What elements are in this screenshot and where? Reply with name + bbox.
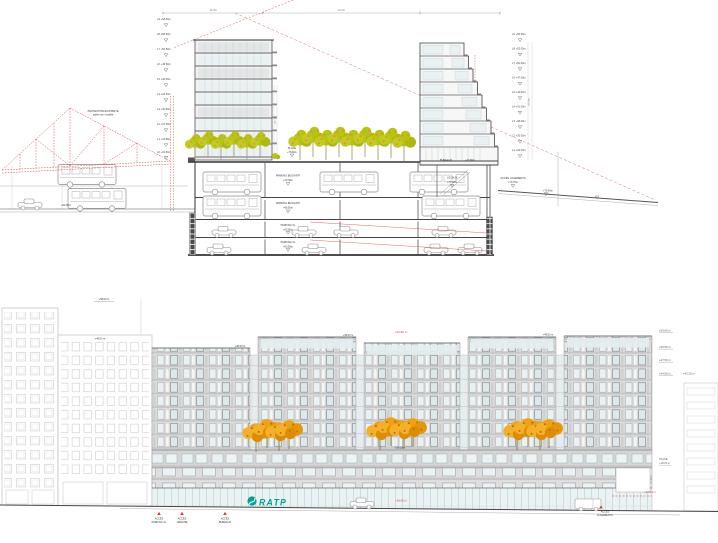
protection-truss: [2, 108, 170, 173]
depot-level-tag: +62.00m: [61, 204, 71, 207]
block-a: [152, 348, 250, 450]
level-label: L2 +35.00m: [512, 134, 526, 138]
section-left-levels: L9 +58.50m L8 +55.50m L7 +52.50m L6 +49.…: [157, 17, 171, 159]
context-building-right: [684, 383, 718, 511]
level-label: L7 +52.50m: [157, 47, 171, 51]
parapet-tag: +46.50 m: [235, 345, 246, 348]
dim-label: 21.10: [273, 116, 277, 124]
bureaux-level: +73.80m: [465, 159, 475, 162]
context-building-2: +49.50 m: [58, 335, 152, 506]
level-label: L8 +55.50m: [157, 32, 171, 36]
parking-label: PARKING VL: [281, 241, 296, 244]
entrance-recess: [616, 468, 650, 492]
mid-dim: 21.10: [273, 85, 277, 160]
svg-text:PLACE: PLACE: [288, 147, 297, 150]
level-label: L7 +50.00m: [512, 61, 526, 65]
dim-label: 11.80: [209, 8, 217, 12]
street-elevation: +58.00 m +49.50 m: [0, 298, 718, 543]
bureaux-label: BUREAUX: [440, 159, 452, 162]
truss-label-line2: atelier non modifié: [93, 114, 114, 117]
level-label: L6 +49.50m: [157, 62, 171, 66]
locaux-level: +70.30m: [447, 181, 457, 184]
car-icon: [207, 244, 231, 255]
car-icon: [424, 244, 448, 255]
place-label: PLACE: [659, 457, 668, 461]
car-icon: [432, 227, 456, 238]
red-street-level: +16.00 m: [644, 490, 656, 494]
podium-band-1: [152, 450, 652, 468]
car-icon: [18, 199, 42, 210]
top-dimension-line: 11.80 14.20: [162, 8, 501, 17]
access-label: BUREAUX: [219, 521, 231, 524]
acces-logements-label: ACCÈS LOGEMENTS: [500, 177, 525, 180]
acces-logements-level: +73.70m: [508, 181, 518, 184]
level-label: L3 +38.00m: [512, 119, 526, 123]
level-label: +47.50 m: [659, 358, 671, 362]
level-label: L9 +56.00m: [512, 32, 526, 36]
place-label: PLACE +76.30m: [287, 147, 297, 157]
access-label: LOGEMENTS: [597, 514, 613, 517]
dim-label: 27.85: [527, 98, 531, 106]
parking-level: +63.50m: [283, 229, 293, 232]
svg-text:+76.30m: +76.30m: [287, 151, 297, 154]
right-level-tag: +73.40m: [543, 190, 553, 193]
level-label: L5 +44.00m: [512, 90, 526, 94]
parapet-tag: +49.50 m: [95, 338, 106, 341]
car-icon: [212, 227, 236, 238]
level-label: +42.20 m: [683, 372, 695, 376]
terrace-level-tag: +28.00 m: [395, 446, 406, 449]
red-level-label: +52.80 m: [395, 330, 408, 334]
parking-level: +66.50m: [283, 207, 293, 210]
red-street-level: +16.00 m: [395, 499, 407, 503]
bus-icon: [320, 172, 378, 195]
existing-depot: +62.00m: [0, 165, 195, 213]
section-right-ground: ACCÈS LOGEMENTS +73.70m +73.40m: [498, 152, 658, 206]
level-label: +53.00 m: [659, 329, 671, 333]
place-level: +19.70 m: [659, 461, 670, 465]
right-dim: 27.85: [527, 42, 532, 160]
parapet-tag: +49.50 m: [543, 334, 554, 337]
parking-structure: PARKING BUS RATP +70.30m PARKING BUS RAT…: [188, 158, 494, 256]
architectural-drawing-sheet: 11.80 14.20 +62.00m PROTECTION EXISTANTE…: [0, 0, 718, 543]
dim-label: 14.20: [337, 8, 345, 12]
bus-icon: [68, 189, 126, 212]
level-label: L1 +32.00m: [512, 148, 526, 152]
section-right-levels: L9 +56.00m L8 +53.00m L7 +50.00m L6 +47.…: [512, 32, 526, 158]
access-label: PARKING VL: [152, 521, 167, 524]
left-top-tag: +58.00 m: [99, 298, 110, 301]
ratp-wordmark: RATP: [259, 498, 287, 508]
level-label: L6 +47.00m: [512, 76, 526, 80]
level-label: +44.50 m: [659, 372, 671, 376]
parapet-tag: +49.50 m: [343, 334, 354, 337]
level-label: L4 +41.00m: [512, 105, 526, 109]
cross-section: 11.80 14.20 +62.00m PROTECTION EXISTANTE…: [0, 0, 658, 255]
car-icon: [292, 227, 316, 238]
level-label: L9 +58.50m: [157, 17, 171, 21]
access-label: CRÈCHE: [177, 521, 188, 524]
bus-icon: [58, 165, 116, 188]
parking-level: +70.30m: [283, 179, 293, 182]
car-icon: [334, 227, 358, 238]
parking-label: PARKING BUS RATP: [276, 175, 300, 178]
level-label: L8 +53.00m: [512, 47, 526, 51]
parking-level: +60.50m: [283, 246, 293, 249]
level-label: L1 +34.50m: [157, 137, 171, 141]
level-label: L5 +46.50m: [157, 77, 171, 81]
level-label: L0 +31.50m: [157, 150, 171, 154]
site-sections-drawing: 11.80 14.20 +62.00m PROTECTION EXISTANTE…: [0, 0, 718, 543]
bus-icon: [203, 196, 261, 219]
car-icon: [302, 244, 326, 255]
parking-label: PARKING VL: [281, 224, 296, 227]
parking-label: PARKING BUS RATP: [276, 202, 300, 205]
bus-icon: [203, 172, 261, 195]
level-label: L4 +43.50m: [157, 92, 171, 96]
block-e: [564, 336, 652, 450]
context-building-1: [2, 308, 58, 506]
level-label: L3 +40.50m: [157, 107, 171, 111]
level-label: L2 +37.50m: [157, 122, 171, 126]
bus-icon: [422, 196, 480, 219]
locaux-label: LOCAUX: [447, 177, 458, 180]
podium-band-2: [152, 468, 652, 488]
bus-icon: [410, 172, 468, 195]
level-label: +50.50 m: [659, 345, 671, 349]
